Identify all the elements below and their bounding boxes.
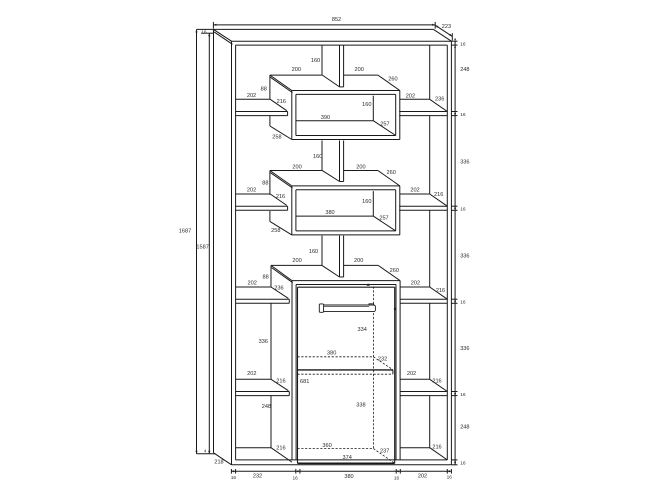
svg-text:200: 200 xyxy=(292,67,301,73)
svg-text:160: 160 xyxy=(309,249,318,255)
svg-text:260: 260 xyxy=(387,170,396,176)
svg-text:257: 257 xyxy=(379,215,388,221)
svg-text:218: 218 xyxy=(214,459,223,465)
svg-text:16: 16 xyxy=(231,475,237,481)
svg-text:16: 16 xyxy=(447,474,453,480)
svg-text:200: 200 xyxy=(356,164,365,170)
svg-text:16: 16 xyxy=(460,42,466,48)
svg-text:88: 88 xyxy=(262,181,268,187)
svg-text:380: 380 xyxy=(344,474,353,480)
svg-text:216: 216 xyxy=(276,194,285,200)
svg-text:223: 223 xyxy=(442,24,451,30)
svg-text:16: 16 xyxy=(201,30,207,36)
svg-text:681: 681 xyxy=(300,379,309,385)
svg-text:202: 202 xyxy=(418,474,427,480)
svg-text:216: 216 xyxy=(436,288,445,294)
svg-text:248: 248 xyxy=(460,67,469,73)
svg-text:336: 336 xyxy=(460,160,469,166)
svg-text:202: 202 xyxy=(407,371,416,377)
svg-text:202: 202 xyxy=(247,188,256,194)
svg-text:202: 202 xyxy=(247,371,256,377)
svg-text:1687: 1687 xyxy=(179,229,191,235)
svg-text:374: 374 xyxy=(343,455,352,461)
svg-text:236: 236 xyxy=(274,285,283,291)
svg-text:216: 216 xyxy=(432,445,441,451)
svg-text:360: 360 xyxy=(322,443,331,449)
svg-text:334: 334 xyxy=(358,327,367,333)
svg-text:260: 260 xyxy=(388,76,397,82)
svg-text:1587: 1587 xyxy=(196,245,208,251)
svg-text:200: 200 xyxy=(292,164,301,170)
svg-text:248: 248 xyxy=(262,404,271,410)
svg-text:202: 202 xyxy=(247,93,256,99)
svg-text:852: 852 xyxy=(332,17,341,23)
svg-text:16: 16 xyxy=(460,461,466,467)
svg-text:16: 16 xyxy=(460,392,466,398)
svg-text:16: 16 xyxy=(394,475,400,481)
svg-text:88: 88 xyxy=(262,274,268,280)
svg-text:338: 338 xyxy=(356,403,365,409)
svg-text:216: 216 xyxy=(277,99,286,105)
svg-text:216: 216 xyxy=(276,379,285,385)
svg-text:236: 236 xyxy=(435,97,444,103)
svg-text:202: 202 xyxy=(406,93,415,99)
svg-text:390: 390 xyxy=(321,115,330,121)
svg-text:160: 160 xyxy=(362,199,371,205)
svg-text:216: 216 xyxy=(432,379,441,385)
svg-text:258: 258 xyxy=(272,134,281,140)
svg-text:202: 202 xyxy=(248,281,257,287)
svg-text:336: 336 xyxy=(460,254,469,260)
svg-text:160: 160 xyxy=(313,154,322,160)
svg-text:380: 380 xyxy=(327,351,336,357)
svg-text:16: 16 xyxy=(460,300,466,306)
svg-text:200: 200 xyxy=(354,258,363,264)
svg-text:232: 232 xyxy=(253,474,262,480)
svg-text:258: 258 xyxy=(271,228,280,234)
svg-text:336: 336 xyxy=(460,346,469,352)
svg-text:248: 248 xyxy=(460,425,469,431)
svg-text:202: 202 xyxy=(411,281,420,287)
svg-text:260: 260 xyxy=(390,268,399,274)
svg-text:257: 257 xyxy=(380,121,389,127)
svg-text:160: 160 xyxy=(362,102,371,108)
svg-text:16: 16 xyxy=(460,112,466,118)
svg-text:160: 160 xyxy=(311,58,320,64)
svg-text:16: 16 xyxy=(293,475,299,481)
svg-text:216: 216 xyxy=(434,192,443,198)
svg-text:380: 380 xyxy=(325,210,334,216)
svg-text:336: 336 xyxy=(259,339,268,345)
svg-text:200: 200 xyxy=(292,258,301,264)
svg-text:16: 16 xyxy=(460,207,466,213)
svg-text:202: 202 xyxy=(410,188,419,194)
svg-text:232: 232 xyxy=(378,357,387,363)
svg-text:88: 88 xyxy=(261,87,267,93)
svg-text:237: 237 xyxy=(380,449,389,455)
svg-text:200: 200 xyxy=(355,67,364,73)
svg-text:216: 216 xyxy=(276,445,285,451)
